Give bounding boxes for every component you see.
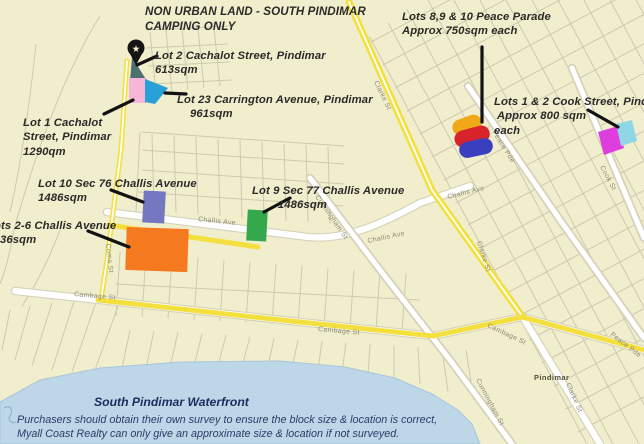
label-lots12-cook: Lots 1 & 2 Cook Street, Pindimar Approx … — [494, 95, 644, 138]
map-title: NON URBAN LAND - SOUTH PINDIMAR CAMPING … — [145, 5, 366, 35]
label-lot9-sec77: Lot 9 Sec 77 Challis Avenue 1486sqm — [252, 184, 404, 213]
pin-star-icon: ★ — [132, 44, 141, 55]
label-lot1-cachalot: Lot 1 Cachalot Street, Pindimar 1290qm — [23, 116, 111, 159]
waterfront-heading: South Pindimar Waterfront — [94, 395, 249, 409]
place-label-pindimar: Pindimar — [534, 373, 569, 382]
pindimar-lots-map: Clarke St Clarke St Clarke St Coma St Ch… — [0, 0, 644, 444]
label-lot23-carrington: Lot 23 Carrington Avenue, Pindimar 961sq… — [177, 93, 373, 122]
label-lot10-sec76: Lot 10 Sec 76 Challis Avenue 1486sqm — [38, 177, 197, 206]
waterfront-disclaimer: Purchasers should obtain their own surve… — [17, 413, 437, 442]
label-lots8910-peace: Lots 8,9 & 10 Peace Parade Approx 750sqm… — [402, 10, 551, 39]
lot9-challis-shape — [246, 209, 268, 241]
label-lot2-cachalot: Lot 2 Cachalot Street, Pindimar 613sqm — [155, 49, 326, 78]
label-lots26-challis: Lots 2-6 Challis Avenue 36sqm — [0, 219, 116, 248]
lots26-challis-shape — [125, 227, 188, 272]
